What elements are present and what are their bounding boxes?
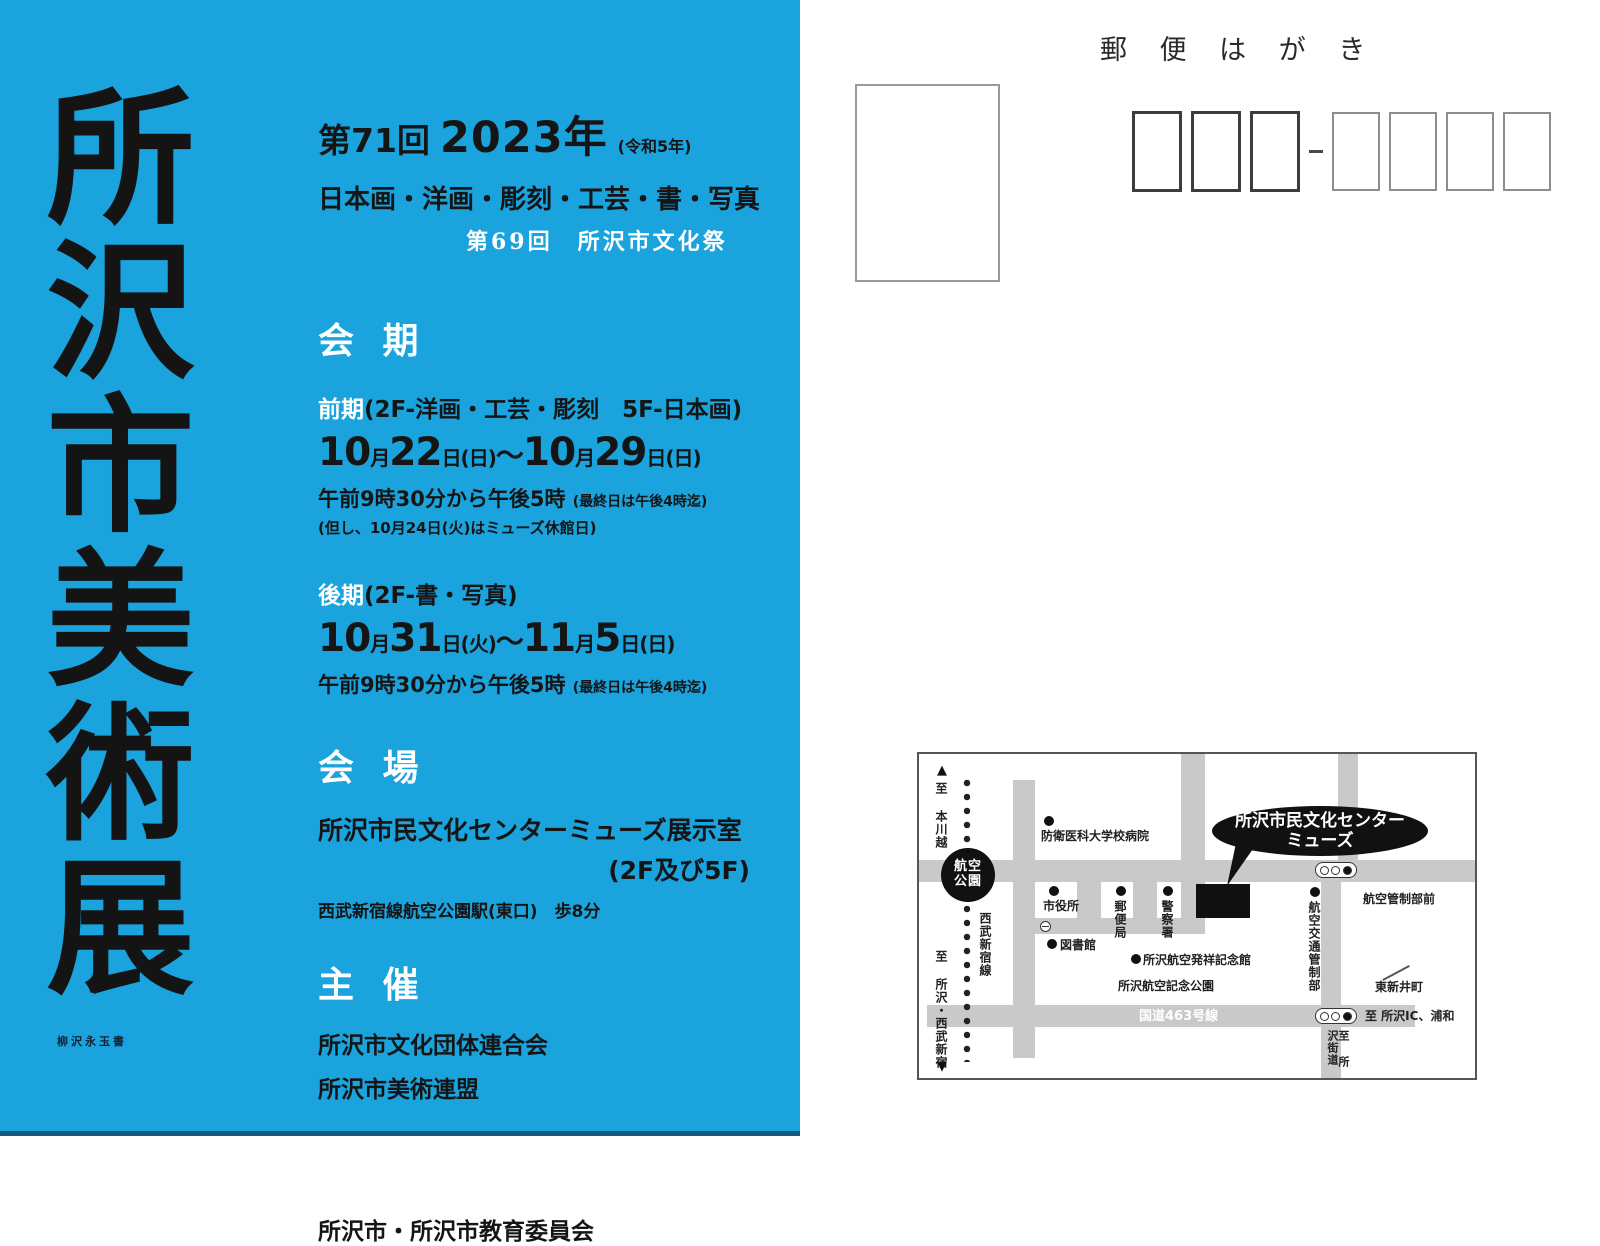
first-time-note: (最終日は午後4時迄) — [573, 494, 708, 510]
venue-floors: (2F及び5F) — [318, 851, 750, 887]
date-day1: 31 — [389, 616, 441, 661]
first-period-time: 午前9時30分から午後5時 (最終日は午後4時迄) — [318, 483, 750, 513]
traffic-signal-icon — [1315, 862, 1357, 878]
date-month1: 10 — [318, 430, 370, 475]
second-time-text: 午前9時30分から午後5時 — [318, 673, 565, 697]
date-month2: 11 — [523, 616, 575, 661]
kokukoen-station-badge: 航空 公園 — [941, 848, 995, 902]
period-heading: 会 期 — [318, 312, 750, 364]
date-day1: 22 — [389, 430, 441, 475]
postcard-header: 郵 便 は が き — [1100, 28, 1377, 67]
second-period-label: 後期 — [318, 583, 364, 609]
police-dot-icon — [1163, 886, 1173, 896]
date-month-unit2: 月 — [575, 632, 594, 656]
calligraphy-title: 所沢市美術展 — [34, 80, 182, 1040]
zip-box-3 — [1250, 111, 1300, 192]
kaido-label: 至 所沢街道 — [1327, 1030, 1349, 1078]
first-time-text: 午前9時30分から午後5時 — [318, 487, 565, 511]
railway-to-north-label: 至 本川越 — [935, 782, 947, 849]
zip-box-6 — [1446, 112, 1494, 191]
edition-label: 第71回 — [318, 114, 430, 162]
zip-dash — [1309, 150, 1323, 153]
higashiarai-label: 東新井町 — [1375, 981, 1423, 994]
second-period-dates: 10月31日(火)〜11月5日(日) — [318, 616, 750, 661]
road-connector-1 — [1077, 880, 1101, 920]
date-day-unit1: 日(日) — [442, 446, 496, 470]
date-month-unit1: 月 — [370, 446, 389, 470]
support-heading: 後 援 — [318, 1140, 750, 1192]
route463-label: 国道463号線 — [1139, 1010, 1218, 1024]
aviation-museum-label: 所沢航空発祥記念館 — [1143, 954, 1251, 967]
signal-lamp — [1320, 1012, 1329, 1021]
arrow-up-icon: ▲ — [937, 764, 947, 777]
era-note: (令和5年) — [618, 133, 692, 157]
date-day2: 29 — [594, 430, 646, 475]
date-month-unit2: 月 — [575, 446, 594, 470]
post-office-dot-icon — [1116, 886, 1126, 896]
second-period-time: 午前9時30分から午後5時 (最終日は午後4時迄) — [318, 669, 750, 699]
second-period-floors: (2F-書・写真) — [364, 583, 518, 609]
first-period-dates: 10月22日(日)〜10月29日(日) — [318, 430, 750, 475]
date-month-unit1: 月 — [370, 632, 389, 656]
first-closed-note: (但し、10月24日(火)はミューズ休館日) — [318, 517, 750, 538]
signal-lamp — [1343, 866, 1352, 875]
stamp-box — [855, 84, 1000, 282]
city-hall-label: 市役所 — [1043, 900, 1079, 913]
police-label: 警察署 — [1161, 900, 1173, 939]
date-day-unit2: 日(日) — [620, 632, 674, 656]
date-day-unit1: 日(火) — [442, 632, 496, 656]
first-period-line: 前期(2F-洋画・工芸・彫刻 5F-日本画) — [318, 390, 750, 424]
year-label: 2023年 — [440, 103, 608, 165]
zip-box-4 — [1332, 112, 1380, 191]
aviation-museum-dot-icon — [1131, 954, 1141, 964]
culture-festival-line: 第69回 所沢市文化祭 — [466, 224, 750, 256]
signal-lamp — [1343, 1012, 1352, 1021]
railroad-crossing-icon — [1040, 921, 1051, 932]
flyer-info-column: 第71回 2023年 (令和5年) 日本画・洋画・彫刻・工芸・書・写真 第69回… — [318, 103, 750, 1246]
organizer-line2: 所沢市美術連盟 — [318, 1070, 750, 1104]
zip-box-5 — [1389, 112, 1437, 191]
hospital-label: 防衛医科大学校病院 — [1041, 830, 1149, 843]
city-hall-dot-icon — [1049, 886, 1059, 896]
atc-center-dot-icon — [1310, 887, 1320, 897]
balloon-line2: ミューズ — [1286, 831, 1353, 851]
signal-lamp — [1320, 866, 1329, 875]
station-name-line1: 航空 — [954, 860, 982, 875]
atc-front-label: 航空管制部前 — [1363, 893, 1435, 906]
date-day2: 5 — [594, 616, 620, 661]
higashiarai-tick-line — [1382, 965, 1409, 980]
second-time-note: (最終日は午後4時迄) — [573, 680, 708, 696]
date-day-unit2: 日(日) — [646, 446, 700, 470]
exhibition-title-row: 第71回 2023年 (令和5年) — [318, 103, 750, 165]
muse-building — [1196, 884, 1250, 918]
date-month1: 10 — [318, 616, 370, 661]
muse-balloon: 所沢市民文化センター ミューズ — [1212, 806, 1428, 856]
access-map: ▲ 至 本川越 至 所沢・西武新宿 ▼ 西武新宿線 航空 公園 防衛医科大学校病… — [917, 752, 1477, 1080]
atc-center-label: 航空交通管制部 — [1308, 901, 1320, 992]
first-period-label: 前期 — [318, 397, 364, 423]
genres-line: 日本画・洋画・彫刻・工芸・書・写真 — [318, 179, 750, 216]
balloon-line1: 所沢市民文化センター — [1235, 811, 1405, 831]
second-period-line: 後期(2F-書・写真) — [318, 576, 750, 610]
road-connector-2 — [1133, 880, 1157, 920]
organizer-heading: 主 催 — [318, 956, 750, 1008]
arrow-down-icon: ▼ — [937, 1060, 947, 1073]
venue-name: 所沢市民文化センターミューズ展示室 — [318, 811, 750, 847]
zip-box-2 — [1191, 111, 1241, 192]
signal-lamp — [1331, 1012, 1340, 1021]
hospital-dot-icon — [1044, 816, 1054, 826]
venue-heading: 会 場 — [318, 739, 750, 791]
station-name-line2: 公園 — [954, 875, 982, 890]
library-dot-icon — [1047, 939, 1057, 949]
scan-edge-artifact — [0, 1131, 800, 1136]
date-month2: 10 — [523, 430, 575, 475]
library-label: 図書館 — [1060, 939, 1096, 952]
railway-line-name-label: 西武新宿線 — [979, 912, 991, 977]
flyer-panel: 所沢市美術展 柳沢永玉書 第71回 2023年 (令和5年) 日本画・洋画・彫刻… — [0, 0, 800, 1136]
date-tilde: 〜 — [496, 439, 523, 472]
post-office-label: 郵便局 — [1114, 900, 1126, 939]
date-tilde: 〜 — [496, 625, 523, 658]
signal-lamp — [1331, 866, 1340, 875]
zip-code-boxes — [1132, 111, 1551, 192]
memorial-park-label: 所沢航空記念公園 — [1118, 980, 1214, 993]
first-period-floors: (2F-洋画・工芸・彫刻 5F-日本画) — [364, 397, 742, 423]
support-line1: 所沢市・所沢市教育委員会 — [318, 1212, 750, 1246]
railway-to-south-label: 至 所沢・西武新宿 — [935, 950, 947, 1069]
traffic-signal-icon — [1315, 1008, 1357, 1024]
to-ic-label: 至 所沢IC、浦和 — [1365, 1010, 1454, 1023]
zip-box-1 — [1132, 111, 1182, 192]
zip-box-7 — [1503, 112, 1551, 191]
organizer-line1: 所沢市文化団体連合会 — [318, 1026, 750, 1060]
artist-signature: 柳沢永玉書 — [57, 1033, 127, 1049]
railway-dotted-line — [963, 776, 971, 1062]
venue-access: 西武新宿線航空公園駅(東口) 歩8分 — [318, 897, 750, 922]
